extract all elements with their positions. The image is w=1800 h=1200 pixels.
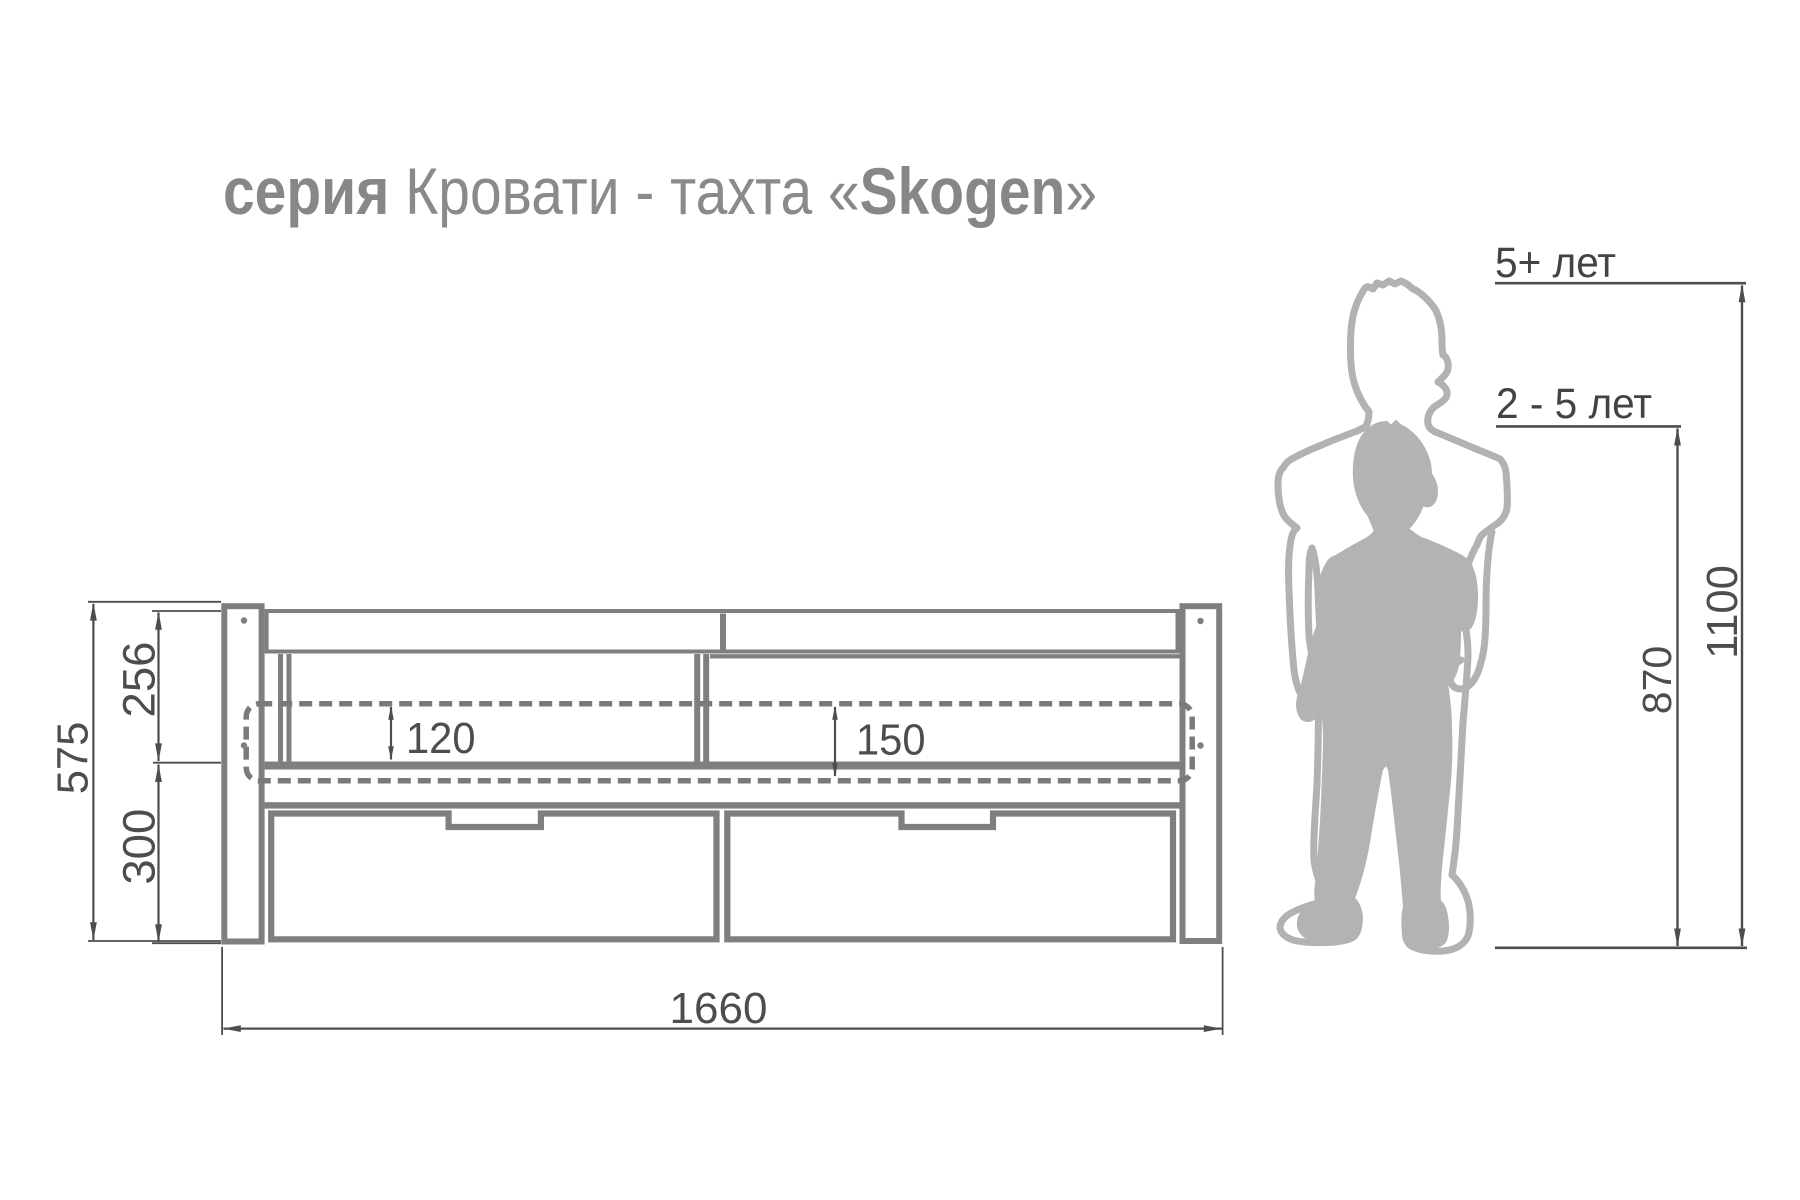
svg-text:120: 120	[406, 714, 476, 763]
svg-text:2 - 5 лет: 2 - 5 лет	[1496, 380, 1652, 428]
svg-text:300: 300	[114, 809, 165, 885]
svg-text:575: 575	[50, 722, 98, 795]
svg-text:256: 256	[114, 642, 165, 718]
svg-text:1100: 1100	[1699, 565, 1747, 659]
svg-text:5+ лет: 5+ лет	[1495, 239, 1616, 287]
svg-text:1660: 1660	[670, 984, 768, 1033]
svg-text:серия Кровати - тахта «Skogen»: серия Кровати - тахта «Skogen»	[223, 154, 1097, 228]
svg-text:150: 150	[856, 716, 926, 765]
svg-text:870: 870	[1634, 646, 1680, 714]
